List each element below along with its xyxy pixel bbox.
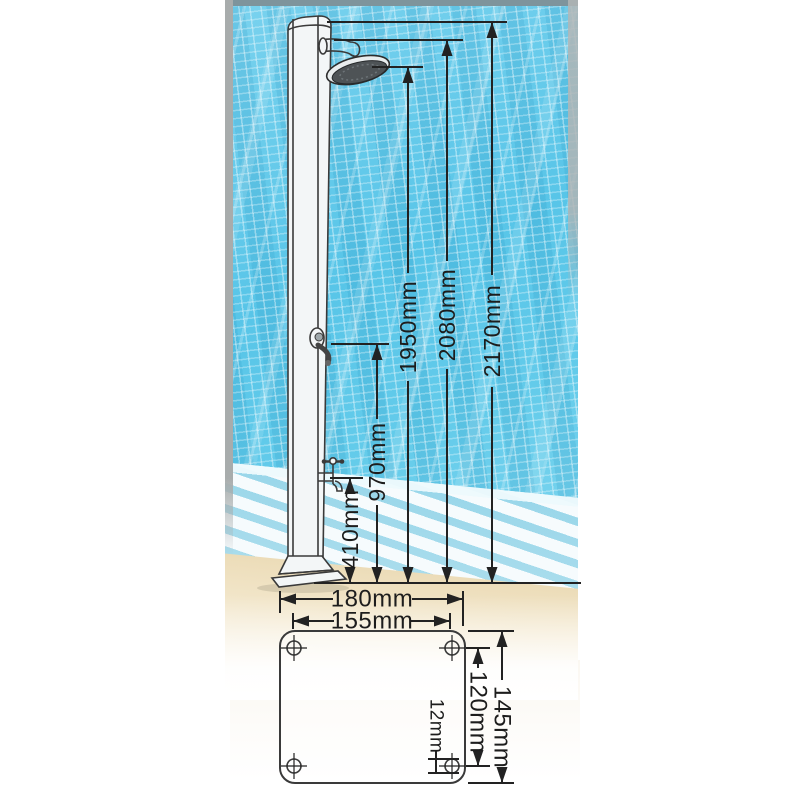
dimension-label-12: 12mm bbox=[426, 699, 447, 753]
dimension-label-2080: 2080mm bbox=[434, 269, 460, 361]
dimension-2080: 2080mm bbox=[434, 40, 460, 583]
dimension-410: 410mm bbox=[337, 478, 363, 583]
dimension-label-120: 120mm bbox=[465, 671, 492, 754]
tap-handle-end bbox=[322, 459, 327, 464]
column-body bbox=[288, 16, 331, 565]
dimension-label-410: 410mm bbox=[337, 489, 363, 568]
shower-column-drawing bbox=[257, 16, 349, 593]
dimension-label-155: 155mm bbox=[331, 608, 414, 635]
dimension-label-970: 970mm bbox=[364, 422, 390, 501]
tap-handle-end bbox=[340, 459, 345, 464]
dimension-diagram: 2170mm 2080mm 1950mm 970mm 410mm bbox=[0, 0, 800, 800]
mixer-knob bbox=[315, 333, 323, 341]
dimension-label-1950: 1950mm bbox=[395, 281, 421, 373]
arm-flange bbox=[319, 38, 327, 54]
dimension-label-2170: 2170mm bbox=[479, 285, 505, 377]
product-dimension-sheet: 2170mm 2080mm 1950mm 970mm 410mm bbox=[0, 0, 800, 800]
dimension-970: 970mm bbox=[364, 344, 390, 583]
dimension-1950: 1950mm bbox=[395, 67, 421, 583]
arm-elbow bbox=[350, 42, 360, 56]
mixer-lever-tip bbox=[325, 360, 331, 366]
dimension-2170: 2170mm bbox=[479, 22, 505, 583]
dimension-label-145: 145mm bbox=[489, 686, 516, 769]
tap-handle-hub bbox=[330, 458, 336, 464]
dimension-120: 120mm bbox=[465, 648, 492, 766]
shower-head bbox=[324, 50, 392, 90]
